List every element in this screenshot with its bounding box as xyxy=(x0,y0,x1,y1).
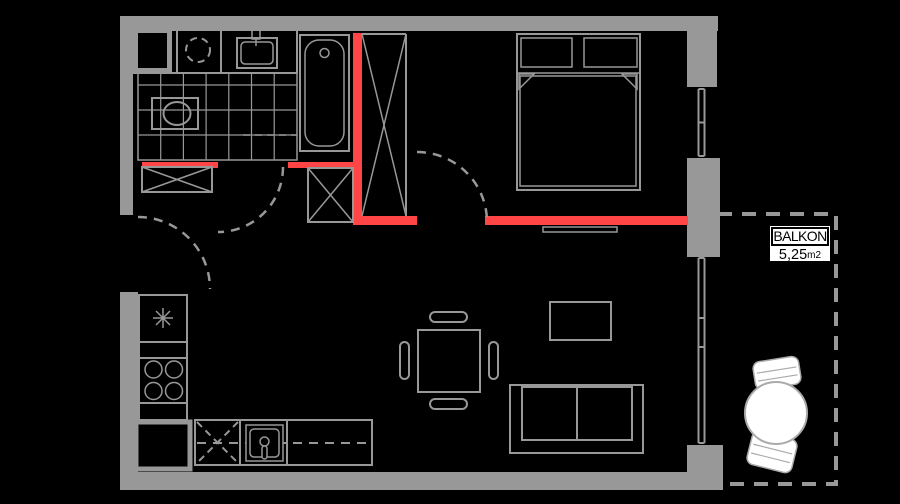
dining-chair-icon xyxy=(430,312,467,322)
wall-left-upper xyxy=(120,16,133,215)
kitchen-cabinet xyxy=(139,403,187,420)
tile-floor xyxy=(138,73,297,160)
door-swing-icon xyxy=(138,217,210,289)
kitchen-corner-unit xyxy=(136,422,190,469)
balcony-label-area: 5,25m2 xyxy=(770,246,830,263)
balcony-label: BALKON 5,25m2 xyxy=(768,224,832,263)
duvet xyxy=(520,76,636,186)
kitchen-cabinet xyxy=(139,342,187,358)
bathroom xyxy=(133,28,349,160)
sofa-icon xyxy=(510,385,643,453)
bathroom-sink-icon xyxy=(237,29,277,68)
radiator-icon xyxy=(543,227,617,232)
kitchen-sink-icon xyxy=(246,425,283,461)
floor-plan: BALKON 5,25m2 xyxy=(0,0,900,504)
balcony-area-value: 5,25 xyxy=(779,248,807,262)
accent-wall-bedroom xyxy=(485,216,688,225)
accent-walls xyxy=(142,33,688,225)
accent-wall-hall xyxy=(353,216,417,225)
bedroom xyxy=(517,34,705,232)
balcony-table-icon xyxy=(745,382,807,444)
window-icon xyxy=(699,89,705,156)
floor-plan-drawing xyxy=(0,0,900,504)
dining-table-icon xyxy=(400,312,498,409)
balcony-area-unit: m2 xyxy=(807,246,821,263)
dining-chair-icon xyxy=(400,342,409,379)
kitchen xyxy=(136,295,372,469)
wardrobe-x-icon xyxy=(142,167,212,192)
stove-icon xyxy=(139,358,187,403)
bed-icon xyxy=(517,34,640,190)
bathtub-icon xyxy=(300,35,349,151)
door-swing-icon xyxy=(417,152,487,222)
fridge-icon xyxy=(139,295,187,342)
living-room xyxy=(400,258,705,453)
snowflake-icon xyxy=(153,308,173,328)
pillow xyxy=(521,38,572,67)
balcony-label-title: BALKON xyxy=(771,227,829,246)
dining-chair-icon xyxy=(430,399,467,409)
shaft-x-icon xyxy=(362,34,406,216)
door-swing-icon xyxy=(218,167,283,232)
dining-chair-icon xyxy=(489,342,498,379)
toilet-icon xyxy=(152,98,198,129)
wall-right-top xyxy=(687,16,717,87)
accent-wall-vertical xyxy=(353,33,362,225)
washing-machine-icon xyxy=(186,38,210,62)
window-icon xyxy=(699,258,705,443)
kitchen-counter xyxy=(195,420,372,465)
wardrobe-x-icon xyxy=(308,168,353,222)
pillow xyxy=(584,38,637,67)
wall-right-middle xyxy=(687,158,720,257)
shaft-corner xyxy=(136,31,170,71)
wall-bottom xyxy=(120,472,723,490)
coffee-table-icon xyxy=(550,302,611,340)
